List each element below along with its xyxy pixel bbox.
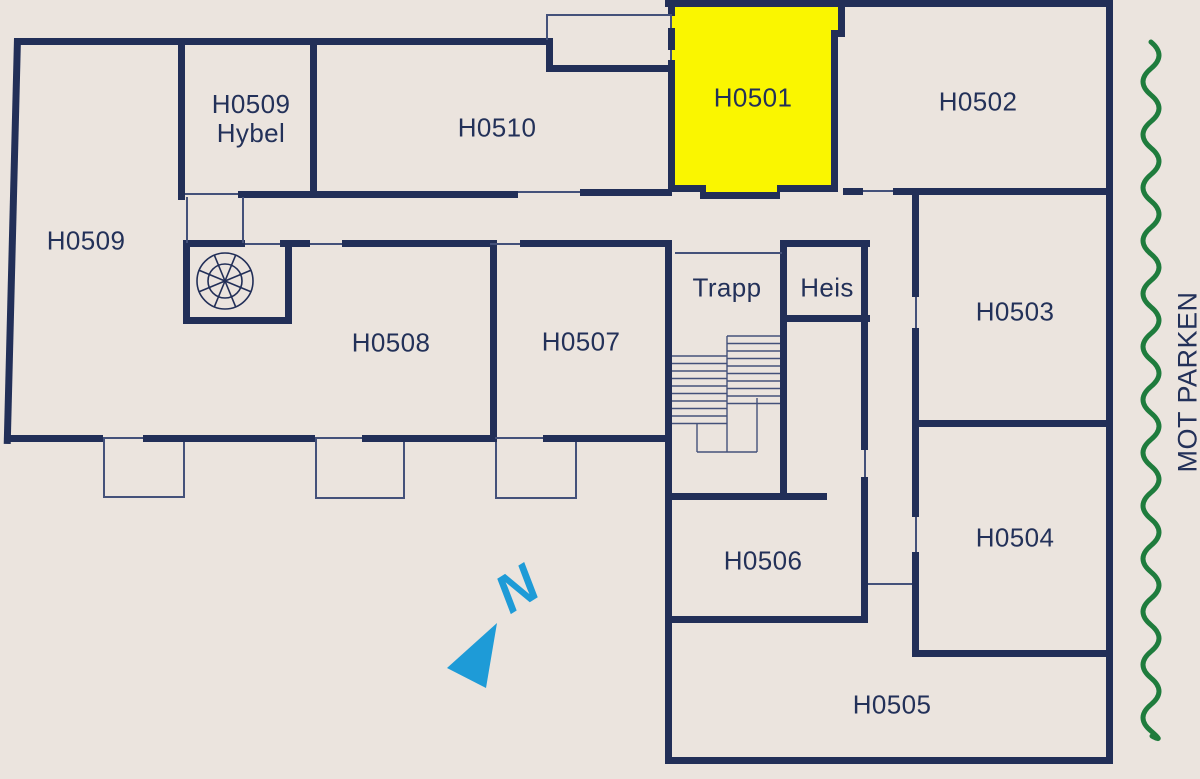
wall-segment xyxy=(665,616,863,623)
wall-segment xyxy=(861,477,868,623)
wall-segment xyxy=(14,38,547,45)
door-window-line xyxy=(864,450,866,477)
door-window-line xyxy=(315,437,362,439)
door-window-line xyxy=(675,252,782,254)
park-wavy-line xyxy=(1143,42,1159,739)
wall-segment xyxy=(183,317,292,324)
stairs-icon xyxy=(672,336,782,452)
room-label-h0502: H0502 xyxy=(939,87,1018,116)
room-label-heis: Heis xyxy=(800,273,854,302)
wall-segment xyxy=(548,65,672,72)
room-label-h0504: H0504 xyxy=(976,523,1055,552)
wall-segment xyxy=(912,650,1113,657)
door-window-line xyxy=(495,437,543,439)
wall-segment xyxy=(143,435,315,442)
room-label-h0505: H0505 xyxy=(853,690,932,719)
door-window-line xyxy=(245,243,280,245)
wall-segment xyxy=(490,240,497,442)
balcony-outline xyxy=(103,437,185,498)
room-label-h0503: H0503 xyxy=(976,297,1055,326)
wall-segment xyxy=(831,33,838,192)
wall-segment xyxy=(780,240,870,247)
wall-segment xyxy=(178,38,185,200)
wall-segment xyxy=(780,322,787,493)
wall-segment xyxy=(580,189,672,196)
wall-segment xyxy=(780,247,787,315)
door-window-line xyxy=(670,50,672,60)
wall-segment xyxy=(342,240,490,247)
door-window-line xyxy=(518,191,580,193)
wall-segment xyxy=(780,315,870,322)
wall-segment xyxy=(843,188,863,195)
wall-segment xyxy=(912,195,919,297)
wall-segment xyxy=(310,38,317,198)
room-label-trapp: Trapp xyxy=(693,273,762,302)
wall-segment xyxy=(700,192,780,199)
wall-segment xyxy=(238,191,518,198)
room-label-h0509-hybel: H0509 Hybel xyxy=(212,90,291,148)
door-window-line xyxy=(186,197,188,243)
door-window-line xyxy=(185,193,238,195)
park-direction-label: MOT PARKEN xyxy=(1173,291,1200,472)
floor-plan: H0509 Hybel H0510 H0501 H0502 H0509 H050… xyxy=(0,0,1200,779)
balcony-outline xyxy=(495,437,577,499)
wall-segment xyxy=(183,240,245,247)
wall-segment xyxy=(912,420,1113,427)
room-label-h0501: H0501 xyxy=(714,83,793,112)
wall-segment xyxy=(861,240,868,450)
door-window-line xyxy=(546,14,548,40)
wall-segment xyxy=(668,185,706,192)
door-window-line xyxy=(868,583,912,585)
wall-segment xyxy=(665,493,827,500)
door-window-line xyxy=(242,197,244,243)
north-arrow-icon xyxy=(447,623,497,688)
door-window-line xyxy=(863,190,893,192)
room-label-h0508: H0508 xyxy=(352,328,431,357)
room-label-line: H0509 xyxy=(212,89,291,119)
wall-segment xyxy=(520,240,670,247)
room-label-h0510: H0510 xyxy=(458,113,537,142)
room-label-h0506: H0506 xyxy=(724,546,803,575)
door-window-line xyxy=(670,16,672,28)
wall-segment xyxy=(668,60,675,192)
wall-segment xyxy=(777,185,838,192)
wall-segment xyxy=(362,435,495,442)
balcony-outline xyxy=(315,437,405,499)
wall-segment xyxy=(912,188,1113,195)
wall-segment xyxy=(285,247,292,324)
wall-segment xyxy=(912,552,919,650)
wall-segment xyxy=(543,435,672,442)
wall-segment xyxy=(668,28,675,50)
wall-segment xyxy=(665,240,672,764)
door-window-line xyxy=(546,14,672,16)
wall-segment xyxy=(912,328,919,420)
door-window-line xyxy=(103,437,143,439)
spiral-stair-icon xyxy=(197,253,253,309)
door-window-line xyxy=(490,243,520,245)
wall-segment xyxy=(665,757,1113,764)
room-label-h0507: H0507 xyxy=(542,327,621,356)
wall-segment xyxy=(4,435,103,442)
wall-segment xyxy=(665,0,1113,7)
room-label-line: Hybel xyxy=(217,118,285,148)
door-window-line xyxy=(310,243,342,245)
room-label-h0509: H0509 xyxy=(47,226,126,255)
door-window-line xyxy=(915,517,917,552)
door-window-line xyxy=(915,297,917,328)
wall-segment xyxy=(893,188,912,195)
wall-segment xyxy=(912,427,919,517)
wall-segment xyxy=(183,247,190,324)
wall-segment xyxy=(280,240,310,247)
